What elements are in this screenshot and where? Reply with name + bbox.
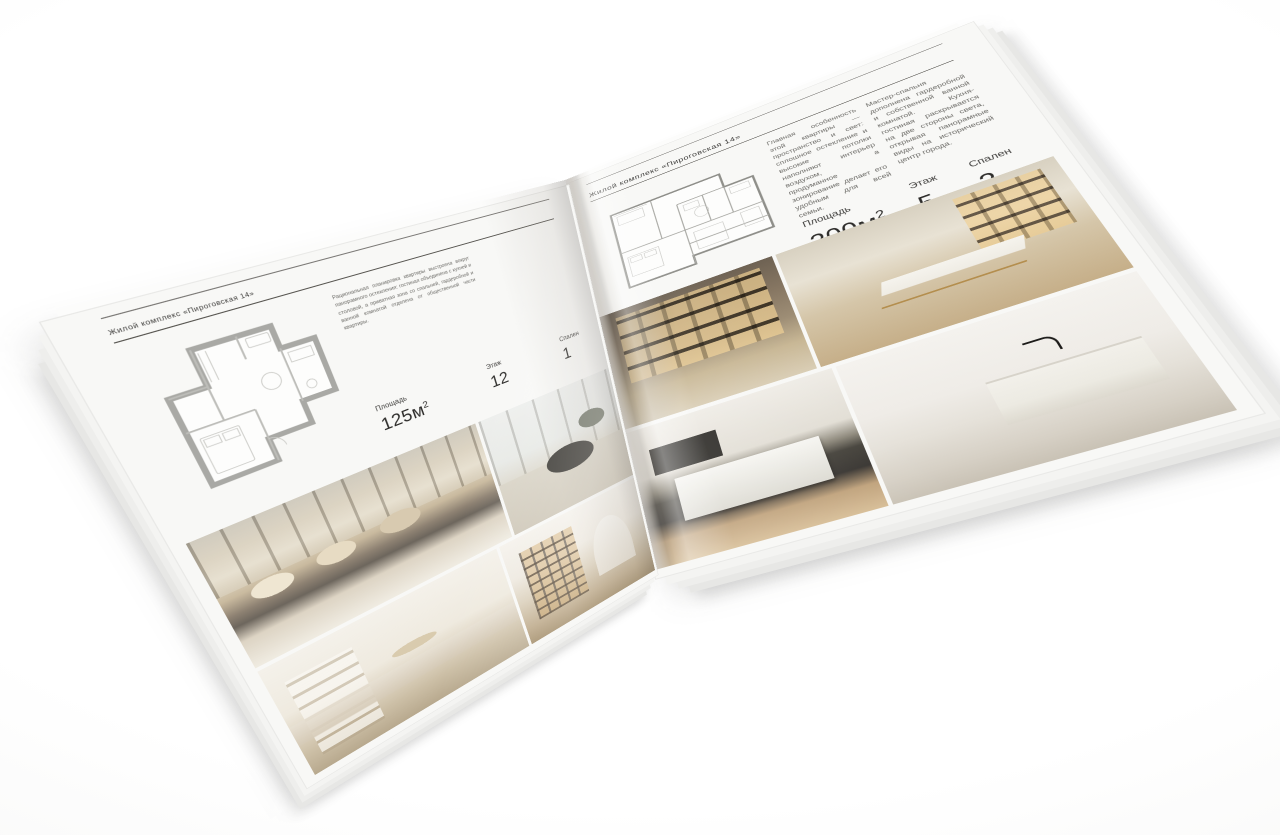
stat-bedrooms: Спален 1	[559, 329, 585, 363]
stat-bedrooms-value: 1	[561, 340, 584, 364]
stat-floor: Этаж 12	[485, 358, 511, 393]
stat-floor-value: 12	[489, 368, 512, 392]
brochure-left-page: Жилой комплекс «Пироговская 14»	[55, 180, 655, 775]
photo-backdrop: Жилой комплекс «Пироговская 14»	[0, 0, 1280, 835]
stat-area: Площадь 125м2	[374, 388, 433, 436]
brochure-right-page: Жилой комплекс «Пироговская 14»	[565, 23, 1237, 570]
